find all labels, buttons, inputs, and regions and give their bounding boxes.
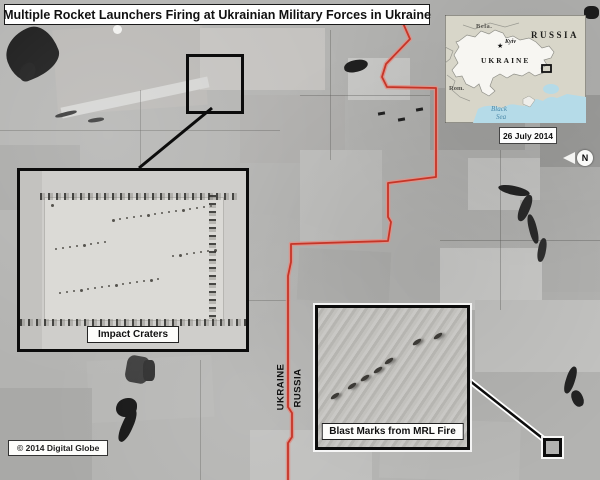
belarus-label: Bela. bbox=[476, 23, 492, 30]
impact-crater-dot bbox=[157, 278, 159, 280]
page-title: Multiple Rocket Launchers Firing at Ukra… bbox=[3, 8, 431, 22]
kyiv-star: ★ bbox=[497, 42, 503, 50]
blast-mark bbox=[360, 373, 370, 382]
impact-crater-dot bbox=[76, 245, 78, 247]
impact-crater-dot bbox=[122, 283, 124, 285]
blast-area-box bbox=[543, 438, 562, 457]
impact-crater-dot bbox=[186, 253, 188, 255]
impact-crater-dot bbox=[196, 207, 198, 209]
impact-crater-dot bbox=[129, 282, 131, 284]
date-label: 26 July 2014 bbox=[503, 131, 553, 141]
impact-crater-dot bbox=[55, 248, 57, 250]
tree-line bbox=[209, 195, 216, 319]
date-box: 26 July 2014 bbox=[499, 127, 557, 144]
impact-crater-dot bbox=[193, 252, 195, 254]
impact-crater-dot bbox=[112, 219, 115, 222]
impact-crater-dot bbox=[136, 281, 138, 283]
impact-crater-dot bbox=[104, 241, 106, 243]
border-label-ukraine: UKRAINE bbox=[276, 364, 287, 411]
annotated-satellite-image: Multiple Rocket Launchers Firing at Ukra… bbox=[0, 0, 600, 480]
impact-crater-dot bbox=[83, 244, 86, 247]
impact-crater-dot bbox=[115, 284, 118, 287]
impact-crater-dot bbox=[80, 289, 83, 292]
blast-marks-label: Blast Marks from MRL Fire bbox=[321, 423, 464, 440]
locator-map: Bela. RUSSIA ★ Kyiv UKRAINE Rom. Black S… bbox=[445, 15, 586, 123]
impact-crater-dot bbox=[66, 291, 68, 293]
impact-crater-dot bbox=[126, 217, 128, 219]
blast-mark bbox=[347, 381, 357, 390]
impact-leader-line bbox=[139, 108, 212, 168]
impact-crater-dot bbox=[87, 288, 89, 290]
blast-marks-inset: Blast Marks from MRL Fire bbox=[315, 305, 470, 450]
impact-crater-dot bbox=[175, 210, 177, 212]
impact-crater-dot bbox=[133, 216, 135, 218]
impact-crater-dot bbox=[51, 204, 54, 207]
border-label-russia: RUSSIA bbox=[293, 369, 304, 408]
impact-crater-dot bbox=[90, 243, 92, 245]
kyiv-label: Kyiv bbox=[504, 39, 516, 45]
impact-crater-dot bbox=[97, 242, 99, 244]
blast-mark bbox=[373, 365, 383, 374]
impact-crater-dot bbox=[69, 246, 71, 248]
blast-mark bbox=[412, 337, 422, 346]
impact-crater-dot bbox=[150, 279, 153, 282]
impact-crater-dot bbox=[59, 292, 61, 294]
impact-craters-inset: Impact Craters bbox=[17, 168, 249, 352]
russia-label: RUSSIA bbox=[531, 30, 579, 40]
impact-crater-dot bbox=[94, 287, 96, 289]
impact-crater-dot bbox=[140, 215, 142, 217]
title-banner: Multiple Rocket Launchers Firing at Ukra… bbox=[4, 4, 430, 25]
impact-crater-dot bbox=[168, 211, 170, 213]
tree-line bbox=[20, 319, 246, 326]
impact-crater-dot bbox=[119, 218, 121, 220]
impact-crater-dot bbox=[161, 212, 163, 214]
sea-of-azov-shape bbox=[543, 84, 559, 94]
copyright-label: © 2014 Digital Globe bbox=[17, 443, 99, 453]
north-arrow-icon bbox=[563, 152, 575, 164]
north-label: N bbox=[582, 153, 589, 163]
impact-crater-dot bbox=[179, 254, 182, 257]
impact-crater-dot bbox=[147, 214, 150, 217]
impact-crater-dot bbox=[203, 206, 205, 208]
blast-leader-line bbox=[470, 381, 546, 441]
copyright-box: © 2014 Digital Globe bbox=[8, 440, 108, 456]
impact-craters-label: Impact Craters bbox=[87, 326, 179, 343]
blast-mark bbox=[330, 391, 340, 400]
blast-mark bbox=[433, 331, 443, 340]
impact-crater-dot bbox=[62, 247, 64, 249]
impact-craters-field bbox=[44, 197, 224, 321]
romania-label: Rom. bbox=[449, 85, 464, 92]
impact-crater-dot bbox=[108, 285, 110, 287]
blast-mark bbox=[384, 356, 394, 365]
impact-crater-dot bbox=[200, 251, 202, 253]
launch-area-box bbox=[186, 54, 244, 114]
impact-crater-dot bbox=[143, 280, 145, 282]
black-sea-label-2: Sea bbox=[496, 113, 507, 121]
impact-crater-dot bbox=[73, 290, 75, 292]
impact-crater-dot bbox=[154, 213, 156, 215]
impact-crater-dot bbox=[172, 255, 174, 257]
impact-crater-dot bbox=[189, 208, 191, 210]
ukraine-label: UKRAINE bbox=[481, 56, 530, 65]
impact-crater-dot bbox=[101, 286, 103, 288]
compass-icon: N bbox=[577, 150, 593, 166]
black-sea-label-1: Black bbox=[491, 105, 508, 113]
impact-crater-dot bbox=[182, 209, 185, 212]
